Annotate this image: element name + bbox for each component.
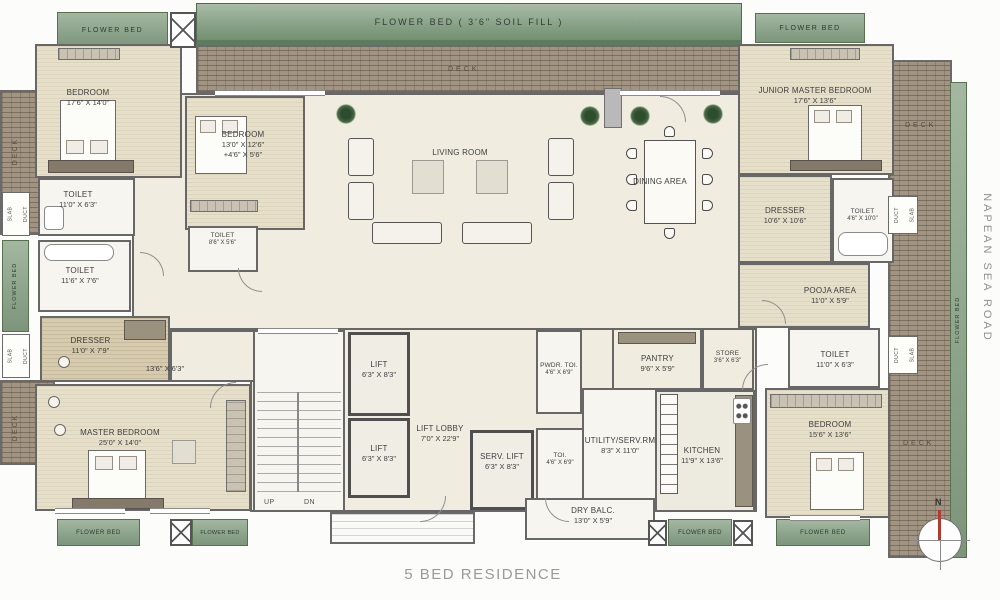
bedroom-2-label: BEDROOM 13'0" X 12'6" +4'6" X 5'6" <box>193 130 293 160</box>
window <box>790 515 860 521</box>
wardrobe <box>226 400 246 492</box>
wardrobe <box>58 48 120 60</box>
road-name: NAPEAN SEA ROAD <box>981 168 993 368</box>
bathtub <box>838 232 888 256</box>
toilet-3-label: TOILET 8'6" X 5'6" <box>185 232 260 248</box>
bathtub <box>44 244 114 261</box>
slab-duct-shaft: SLAB DUCT <box>2 334 30 378</box>
master-bedroom-label: MASTER BEDROOM 25'0" X 14'0" <box>60 428 180 448</box>
window <box>215 90 325 96</box>
deck-left-bottom-label: DECK <box>12 414 19 441</box>
north-compass-icon: N <box>905 495 980 575</box>
plant-icon <box>580 106 600 126</box>
stairs-dn-label: DN <box>304 499 315 506</box>
pillow <box>95 456 113 470</box>
flower-bed-top-left: FLOWER BED <box>57 12 168 48</box>
flower-bed-left: FLOWER BED <box>2 240 29 332</box>
flower-bed-right: FLOWER BED <box>950 82 967 558</box>
chair <box>48 396 60 408</box>
plant-icon <box>336 104 356 124</box>
wardrobe <box>190 200 258 212</box>
pillow <box>816 458 832 471</box>
sofa <box>348 182 374 220</box>
dresser-left-label: DRESSER 11'0" X 7'9" <box>48 336 133 356</box>
lift-2-label: LIFT 6'3" X 8'3" <box>350 444 408 464</box>
pooja-label: POOJA AREA 11'0" X 5'9" <box>790 286 870 306</box>
flower-bed-top-right: FLOWER BED <box>755 13 865 43</box>
duct-shaft-icon <box>648 520 667 546</box>
pillow <box>119 456 137 470</box>
hob <box>733 398 751 424</box>
window <box>55 508 125 514</box>
dining-chair <box>702 200 713 211</box>
dry-balc-label: DRY BALC. 13'0" X 5'9" <box>548 506 638 526</box>
sofa <box>548 138 574 176</box>
duct-shaft-icon <box>733 520 753 546</box>
kitchen-label: KITCHEN 11'9" X 13'6" <box>662 446 742 466</box>
toilet-2-label: TOILET 11'6" X 7'6" <box>40 266 120 286</box>
bed-console <box>48 160 134 173</box>
utility-label: UTILITY/SERV.RM 8'3" X 11'0" <box>570 436 670 456</box>
dining-chair <box>702 148 713 159</box>
stool <box>58 356 70 368</box>
flower-bed-bottom-4: FLOWER BED <box>776 519 870 546</box>
plant-icon <box>630 106 650 126</box>
flower-bed-bottom-1: FLOWER BED <box>57 519 140 546</box>
pillow <box>836 110 852 123</box>
dresser-right-label: DRESSER 10'6" X 10'6" <box>745 206 825 226</box>
wardrobe <box>770 394 882 408</box>
duct-shaft-icon <box>170 12 196 48</box>
slab-duct-shaft: DUCT SLAB <box>888 336 918 374</box>
passage <box>170 330 255 382</box>
bedroom-1-label: BEDROOM 17'6" X 14'0" <box>38 88 138 108</box>
sofa <box>348 138 374 176</box>
floor-plan: FLOWER BED FLOWER BED ( 3'6" SOIL FILL )… <box>0 0 1000 600</box>
window <box>258 328 338 334</box>
stair-treads <box>257 392 341 492</box>
bedroom-5-label: BEDROOM 15'6" X 13'6" <box>775 420 885 440</box>
pantry-counter <box>618 332 696 344</box>
entrance-porch <box>330 512 475 544</box>
window <box>150 508 210 514</box>
living-room-label: LIVING ROOM <box>410 148 510 158</box>
deck-right-top-label: DECK <box>905 122 936 129</box>
sofa <box>548 182 574 220</box>
dining-chair <box>626 200 637 211</box>
pillow <box>90 140 108 154</box>
deck-left-top-label: DECK <box>12 138 19 165</box>
stairs-up-label: UP <box>264 499 275 506</box>
pillow <box>814 110 830 123</box>
toilet-jr-label: TOILET 4'6" X 10'0" <box>830 208 895 224</box>
window <box>620 90 720 96</box>
plan-title: 5 BED RESIDENCE <box>333 566 633 583</box>
pantry-label: PANTRY 9'6" X 5'9" <box>620 354 695 374</box>
coffee-table <box>412 160 444 194</box>
dining-chair <box>702 174 713 185</box>
dining-chair <box>664 228 675 239</box>
plant-icon <box>703 104 723 124</box>
compass-needle <box>938 510 941 540</box>
stair-divider <box>297 392 299 492</box>
wardrobe <box>790 48 860 60</box>
lift-lobby-label: LIFT LOBBY 7'0" X 22'9" <box>395 424 485 444</box>
flower-bed-bottom-2: FLOWER BED <box>192 519 248 546</box>
pwdr-toi-label: PWDR. TOI. 4'6" X 6'9" <box>534 362 584 378</box>
duct-shaft-icon <box>170 519 192 546</box>
pillow <box>838 458 854 471</box>
junior-master-label: JUNIOR MASTER BEDROOM 17'6" X 13'6" <box>745 86 885 106</box>
dining-area-label: DINING AREA <box>620 177 700 187</box>
store-label: STORE 3'6" X 6'3" <box>700 350 755 366</box>
flower-bed-top-main: FLOWER BED ( 3'6" SOIL FILL ) <box>196 3 742 45</box>
deck-right-bottom-label: DECK <box>903 440 934 447</box>
compass-north-label: N <box>935 497 942 507</box>
deck-right <box>888 60 952 558</box>
deck-top-label: DECK <box>448 66 479 73</box>
sofa <box>462 222 532 244</box>
passage-label: 13'6" X 6'3" <box>125 364 205 374</box>
slab-duct-shaft: SLAB DUCT <box>2 192 30 236</box>
toilet-1-label: TOILET 11'0" X 6'3" <box>38 190 118 210</box>
coffee-table <box>476 160 508 194</box>
sofa <box>372 222 442 244</box>
dining-chair <box>626 148 637 159</box>
lift-1-label: LIFT 6'3" X 8'3" <box>350 360 408 380</box>
bed-console <box>790 160 882 171</box>
dining-chair <box>664 126 675 137</box>
flower-bed-bottom-3: FLOWER BED <box>668 519 732 546</box>
toilet-right-label: TOILET 11'0" X 6'3" <box>795 350 875 370</box>
pillow <box>66 140 84 154</box>
serv-lift-label: SERV. LIFT 6'3" X 8'3" <box>470 452 534 472</box>
